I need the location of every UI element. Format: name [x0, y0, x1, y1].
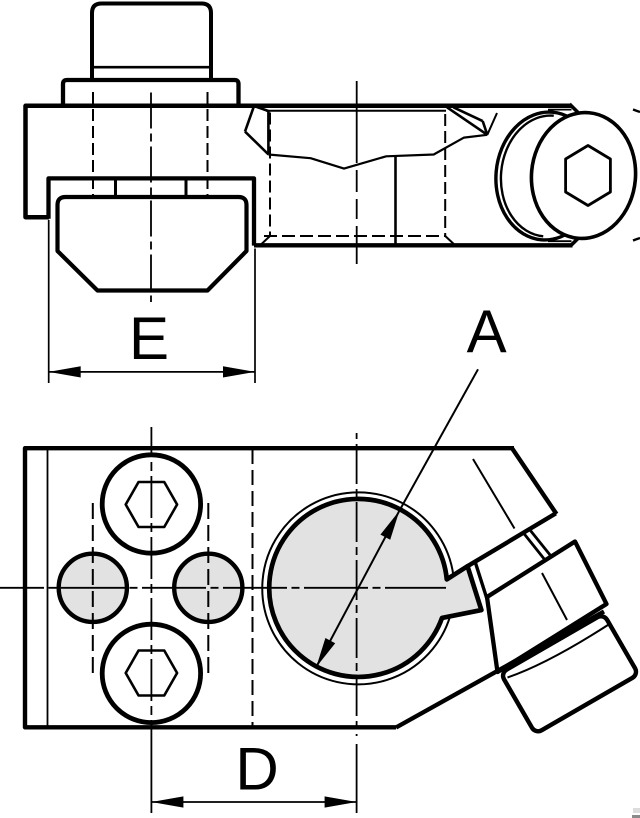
svg-text:E: E [129, 305, 169, 372]
svg-text:D: D [235, 736, 278, 803]
svg-text:A: A [467, 298, 507, 365]
